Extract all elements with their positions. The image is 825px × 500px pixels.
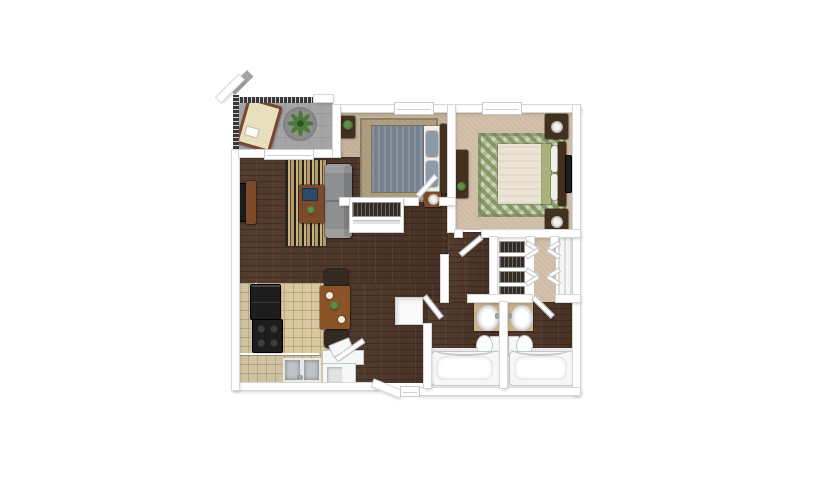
living-tv-console (246, 181, 256, 224)
wall-closet1-left (490, 237, 497, 302)
dining-plate (326, 292, 333, 299)
balcony-top-wall-stub (314, 95, 333, 102)
bedroom1-lamp (428, 194, 439, 205)
bedroom1-bed-duvet (372, 126, 424, 192)
bathroom2-curtain-rod (511, 342, 571, 356)
bathroom2-sink (511, 305, 533, 331)
dining-plate (338, 316, 345, 323)
bedroom2-pillow (551, 146, 558, 172)
wall-bedroom1-bottom-c (440, 198, 455, 205)
wall-bedroom1-left (333, 105, 340, 157)
bedroom1-window (394, 102, 434, 115)
bathroom2-bathtub-basin (514, 356, 567, 380)
closet1-hanging-clothes (500, 257, 524, 267)
wall-right (573, 105, 580, 395)
sofa-armrest-top (325, 164, 352, 173)
kitchen-sink-basin (302, 358, 321, 382)
washer-opening (327, 367, 342, 382)
wall-bottom-right (418, 388, 580, 395)
floor-plan-image (0, 0, 825, 500)
wall-baths-top-b (556, 295, 580, 302)
kitchen-faucet (297, 375, 303, 380)
coffee-table-plant (307, 206, 315, 214)
hallway-floor (448, 232, 490, 302)
wall-bedroom2-bottom (482, 230, 580, 237)
potted-plant (287, 110, 314, 137)
balcony-railing-top (239, 97, 316, 103)
bathroom2-faucet (508, 313, 512, 319)
laptop (303, 189, 317, 200)
bedroom1-headboard (440, 124, 447, 194)
dining-table-plant (330, 301, 339, 310)
wall-bedroom1-bottom-b (402, 198, 418, 205)
bedroom2-lamp-bottom (551, 216, 563, 228)
bathroom1-curtain-rod (433, 342, 497, 356)
sofa-armrest-bottom (325, 229, 352, 238)
balcony-sliding-door (264, 149, 314, 160)
closet1-hanging-clothes (500, 272, 524, 282)
stove (253, 320, 282, 352)
bedroom2-wall-tv (566, 156, 571, 192)
wall-bath1-left (424, 324, 431, 388)
wall-bedroom-divider (448, 105, 455, 232)
wall-living-hall (441, 255, 448, 302)
bedroom1-closet-clothes (353, 203, 400, 216)
bedroom2-bed-duvet (498, 144, 542, 204)
bedroom2-accent-runner (542, 144, 551, 204)
balcony-railing-left (233, 95, 239, 150)
walk-in-closet2-shelving (558, 237, 573, 302)
bedroom2-headboard (558, 142, 566, 206)
bedroom2-plant (457, 182, 466, 191)
bathroom1-faucet (495, 313, 499, 319)
wall-bath-divider (500, 302, 507, 388)
bedroom1-plant (343, 120, 353, 130)
linen-closet (396, 298, 422, 324)
wall-bottom-left (232, 383, 378, 390)
bedroom2-pillow (551, 174, 558, 200)
bedroom2-lamp-top (551, 121, 563, 133)
entry-threshold (400, 386, 420, 397)
plant-icon (287, 110, 314, 137)
wall-top (333, 105, 580, 112)
wall-baths-top-a (468, 295, 532, 302)
refrigerator (251, 285, 280, 319)
bedroom1-closet-sliding-track (353, 220, 400, 224)
bathroom1-bathtub-basin (436, 356, 493, 380)
bedroom2-window (482, 102, 522, 115)
wall-left (232, 150, 239, 390)
closet1-hanging-clothes (500, 242, 524, 252)
wall-bedroom2-bottom-stub (455, 230, 462, 237)
bedroom1-pillow (426, 131, 438, 157)
